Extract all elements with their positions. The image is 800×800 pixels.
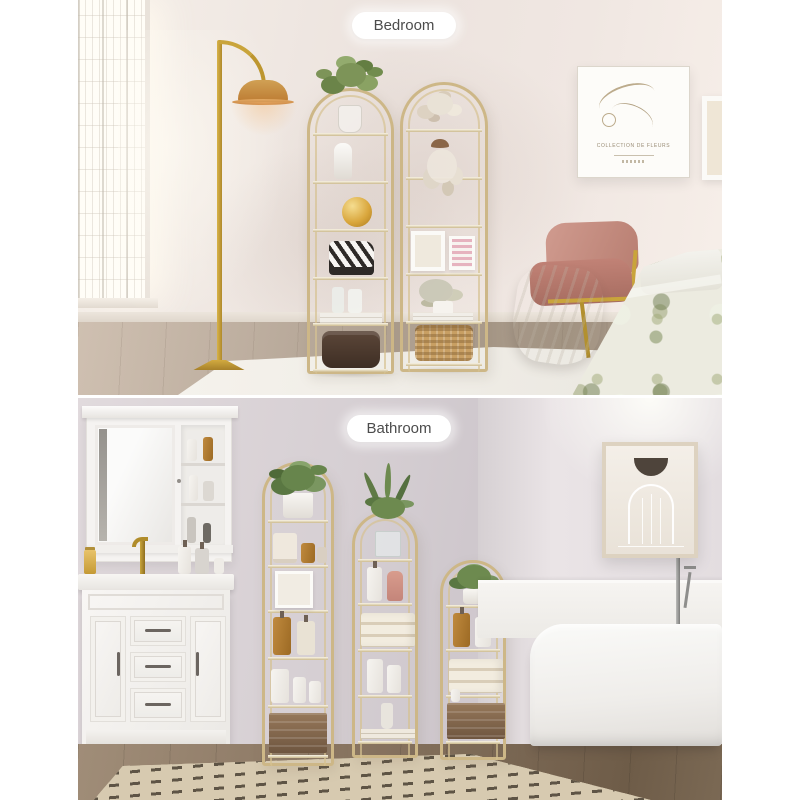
bottle (203, 437, 213, 461)
shelf-line (313, 229, 388, 232)
shelf-line (313, 181, 388, 184)
bathroom-badge-label: Bathroom (366, 420, 431, 437)
poster-caption: COLLECTION DE FLEURS (578, 143, 689, 149)
bottle (189, 475, 198, 501)
candle (214, 558, 224, 574)
art-line (618, 546, 684, 547)
glass-vase (338, 105, 362, 133)
wall-poster: COLLECTION DE FLEURS (577, 66, 690, 178)
bathtub (530, 624, 722, 746)
shelf-line (268, 755, 328, 758)
glass-vase (375, 531, 401, 557)
faucet-spout (132, 537, 148, 547)
folded-towels (361, 613, 415, 647)
plant (281, 465, 315, 491)
bottle (332, 287, 344, 313)
cabinet-ledge (87, 545, 233, 553)
bedroom-badge-label: Bedroom (374, 17, 435, 34)
wood-crate (269, 713, 327, 753)
vanity-drawer (130, 652, 186, 682)
perfume-bottle (84, 550, 96, 574)
pump-bottle (273, 617, 291, 655)
canister (309, 681, 321, 703)
frame-art (602, 442, 698, 558)
pump-bottle (297, 621, 315, 655)
bedroom-badge: Bedroom (352, 12, 456, 39)
photo-frame (275, 571, 313, 608)
art-line (642, 498, 643, 544)
shelf-line (406, 225, 482, 228)
vanity-rail (86, 730, 226, 744)
shelf-line (406, 129, 482, 132)
shelf-line (406, 363, 482, 366)
shelf-line (446, 741, 500, 744)
shelf-line (268, 610, 328, 613)
shelf-line (268, 565, 328, 568)
floral-spray (427, 149, 457, 183)
shelf-line (358, 603, 412, 606)
books (320, 313, 382, 323)
bathroom-badge: Bathroom (347, 415, 451, 442)
dried-flowers (419, 279, 453, 303)
etagere-tall (262, 462, 334, 766)
etagere-left (307, 88, 394, 374)
shelf-line (358, 741, 412, 744)
books (413, 313, 473, 321)
cabinet-crown (82, 406, 238, 418)
plant-pot (283, 493, 313, 518)
tub-faucet-pole (676, 546, 680, 628)
soap-bottle (195, 548, 209, 574)
bow-ornament (431, 139, 449, 148)
bottle (451, 689, 460, 702)
bottle (387, 665, 401, 693)
poster-caption-line (622, 160, 646, 163)
poster-line-art (602, 113, 616, 127)
pink-bottle (387, 571, 403, 601)
shelf-line (406, 273, 482, 276)
bottle (203, 481, 214, 501)
cabinet-shelf-line (181, 503, 225, 506)
pump-bottle (453, 613, 470, 647)
shelf-line (268, 705, 328, 708)
bottle (203, 523, 211, 543)
vanity-apron (88, 594, 224, 610)
cabinet-mirror (95, 425, 175, 545)
wall-frame-partial (702, 96, 722, 180)
lamp-glow (230, 102, 298, 136)
vanity-body (82, 590, 230, 758)
bedroom-scene: COLLECTION DE FLEURS Bedroom (78, 0, 722, 395)
wicker-basket (415, 325, 473, 361)
shelf-line (358, 649, 412, 652)
vanity-door (190, 616, 226, 722)
gold-fishbowl (342, 197, 372, 227)
arch-floral (427, 93, 453, 115)
soap-bottle (178, 546, 191, 574)
vanity-drawer (130, 688, 186, 722)
shelf-line (313, 369, 388, 372)
cream-jar (273, 533, 297, 563)
mirror-reflection (99, 429, 107, 541)
round-basket (322, 331, 380, 368)
poster-caption-line (614, 155, 654, 156)
canister (271, 669, 289, 703)
plant (371, 497, 405, 519)
bottle (187, 439, 197, 461)
photo-frame (411, 231, 445, 271)
plant (336, 63, 366, 87)
amber-jar (301, 543, 315, 563)
vanity-drawer (130, 616, 186, 646)
vanity-counter (78, 574, 234, 590)
product-image: COLLECTION DE FLEURS Bedroom (0, 0, 800, 800)
shelf-line (446, 649, 500, 652)
shelf-line (358, 559, 412, 562)
shelf-line (313, 277, 388, 280)
shelf-line (358, 695, 412, 698)
bathroom-scene: Bathroom (78, 398, 722, 800)
bottle (187, 517, 196, 543)
folded-towels (449, 659, 503, 693)
shelf-line (313, 323, 388, 326)
vanity-door (90, 616, 126, 722)
shelf-line (268, 520, 328, 523)
canister (293, 677, 306, 703)
etagere-right (400, 82, 488, 372)
bottle (367, 659, 383, 693)
figurine (334, 143, 352, 179)
pump-bottle (367, 567, 382, 601)
photo-frame-pink (449, 236, 475, 270)
art-semicircle (634, 458, 668, 476)
wood-crate (447, 703, 505, 739)
shelf-line (406, 321, 482, 324)
cabinet-shelf-line (181, 463, 225, 466)
art-line (660, 498, 661, 544)
floor-lamp-pole (217, 40, 222, 366)
etagere-medium (352, 512, 418, 758)
art-line (651, 494, 652, 544)
powder-puff (317, 547, 327, 563)
shelf-line (268, 657, 328, 660)
zebra-handbag (329, 241, 374, 275)
bottle (348, 289, 362, 313)
medicine-cabinet (86, 412, 232, 562)
bud-vase (381, 703, 393, 729)
tub-faucet-handle (684, 566, 696, 569)
books (361, 729, 415, 739)
shelf-line (313, 133, 388, 136)
